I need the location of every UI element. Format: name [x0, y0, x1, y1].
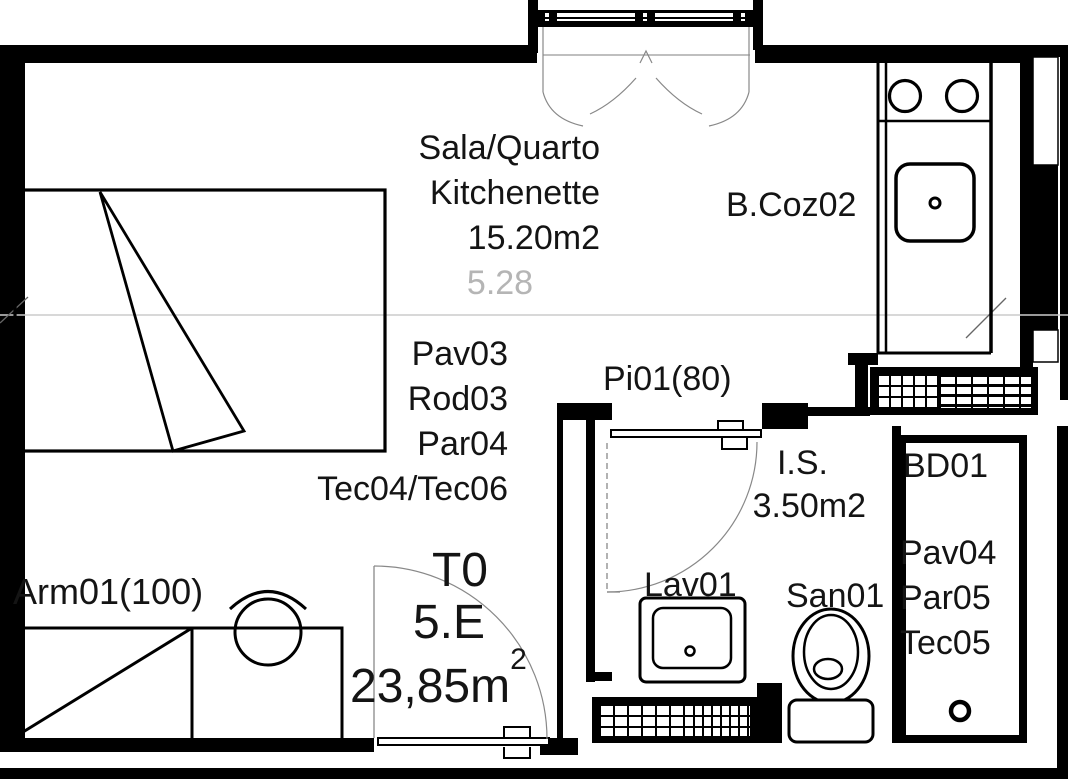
unit-area-value: 23,85m	[350, 660, 510, 713]
living-finish-skirting: Rod03	[408, 382, 508, 418]
cooktop-burner-icon	[947, 81, 978, 112]
unit-area-exponent: 2	[510, 643, 527, 676]
toilet-base	[789, 700, 873, 742]
living-room-area: 15.20m2	[468, 221, 600, 257]
bathroom-label: I.S.	[777, 446, 828, 482]
kitchen-counter	[878, 63, 991, 353]
bathroom-fixtures	[640, 598, 969, 742]
door-swing-arc	[656, 78, 702, 114]
wardrobe-right-module	[192, 628, 342, 740]
bathroom-area: 3.50m2	[753, 489, 866, 525]
door-swing-arc	[543, 92, 583, 126]
shower-label: BD01	[903, 449, 988, 485]
door-swing-arc	[709, 92, 749, 126]
unit-type: T0	[418, 546, 502, 596]
toilet-label: San01	[786, 579, 884, 615]
door-swing-arc	[590, 78, 636, 114]
kitchen-label: B.Coz02	[726, 188, 856, 224]
shower-finish-wall: Par05	[900, 581, 991, 617]
break-mark-right	[966, 298, 1006, 338]
lavatory-label: Lav01	[644, 568, 737, 604]
living-finish-floor: Pav03	[412, 337, 508, 373]
living-finish-wall: Par04	[417, 427, 508, 463]
bathroom-door-handle	[718, 421, 747, 449]
dimension-5-28: 5.28	[452, 266, 548, 302]
unit-number: 5.E	[396, 598, 502, 648]
kitchen-sink-drain-icon	[930, 198, 940, 208]
lavatory-drain-icon	[686, 647, 695, 656]
bathroom-door-label: Pi01(80)	[603, 362, 732, 398]
toilet-drain-icon	[814, 659, 842, 679]
cooktop-burner-icon	[890, 81, 921, 112]
bed	[15, 190, 385, 451]
kitchen-sink	[896, 164, 974, 241]
balcony-door-swing	[543, 27, 749, 126]
door-meeting-stiles	[640, 51, 652, 63]
lavatory-basin	[653, 608, 731, 668]
living-room-name-line1: Sala/Quarto	[419, 131, 600, 167]
entrance-door-handle	[504, 727, 530, 758]
floor-plan: Sala/Quarto Kitchenette 15.20m2 5.28 B.C…	[0, 0, 1068, 779]
wardrobe-diagonal	[10, 628, 192, 740]
shaft-opening-lower	[1033, 330, 1058, 362]
shaft-opening-upper	[1033, 57, 1058, 165]
shower-finish-floor: Pav04	[900, 536, 996, 572]
wardrobe-hanger-circle	[235, 599, 301, 665]
shower-finish-ceiling: Tec05	[900, 626, 991, 662]
shower-drain-icon	[951, 702, 969, 720]
living-room-name-line2: Kitchenette	[430, 176, 600, 212]
unit-area: 23,85m2	[350, 660, 527, 712]
bed-blanket-fold	[100, 192, 244, 451]
living-finish-ceiling: Tec04/Tec06	[317, 472, 508, 508]
wardrobe-label: Arm01(100)	[13, 573, 203, 611]
plan-linework	[0, 0, 1068, 779]
